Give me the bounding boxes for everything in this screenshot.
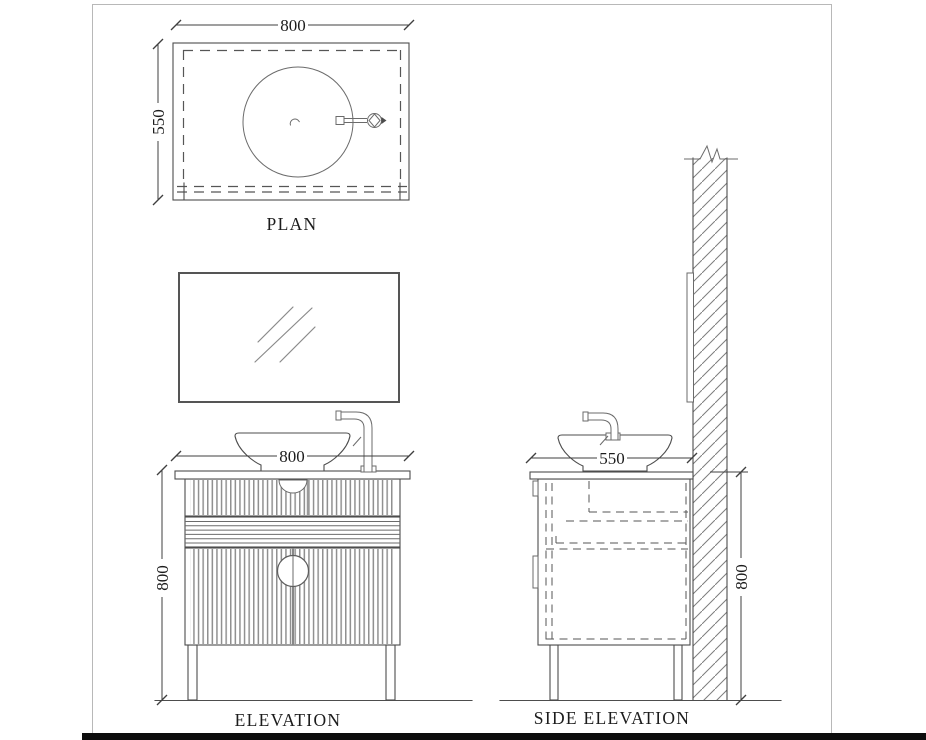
side-drawer-handle — [533, 481, 538, 496]
dim-elev-width: 800 — [171, 447, 414, 466]
plan-view: 800 550 PLAN — [149, 16, 414, 234]
vanity-technical-drawing: 800 550 PLAN — [0, 0, 926, 740]
dim-plan-depth: 550 — [149, 39, 168, 205]
elevation-title: ELEVATION — [235, 710, 342, 730]
plan-title: PLAN — [267, 214, 318, 234]
side-leg-back — [674, 645, 682, 700]
wall-hatch — [693, 158, 727, 700]
countertop-side — [530, 472, 693, 479]
side-door-handle — [533, 556, 538, 588]
mirror-front — [179, 273, 399, 402]
cabinet-leg-left — [188, 645, 197, 700]
dim-plan-width: 800 — [171, 16, 414, 35]
wall-break-icon — [684, 146, 738, 162]
bottom-bar — [82, 733, 926, 740]
wall-section — [684, 146, 738, 700]
dim-side-depth: 550 — [526, 449, 697, 468]
elevation-view: 800 800 ELEVATION — [153, 411, 472, 730]
side-leg-front — [550, 645, 558, 700]
dim-label-plan-depth: 550 — [149, 109, 168, 135]
dim-elev-height: 800 — [153, 465, 172, 705]
side-elevation-view: 550 800 SIDE ELEVATION — [500, 146, 781, 728]
middle-ribbed-band — [185, 517, 400, 547]
cabinet-leg-right — [386, 645, 395, 700]
mirror-side-profile — [687, 273, 694, 402]
side-elevation-title: SIDE ELEVATION — [534, 708, 690, 728]
drawing-sheet: 800 550 PLAN — [0, 0, 926, 740]
dim-label-elev-width: 800 — [279, 447, 305, 466]
mirror-frame — [179, 273, 399, 402]
cabinet-side-body — [538, 479, 690, 645]
dim-label-elev-height: 800 — [153, 565, 172, 591]
dim-label-side-height: 800 — [732, 564, 751, 590]
dim-label-plan-width: 800 — [280, 16, 306, 35]
dim-label-side-depth: 550 — [599, 449, 625, 468]
